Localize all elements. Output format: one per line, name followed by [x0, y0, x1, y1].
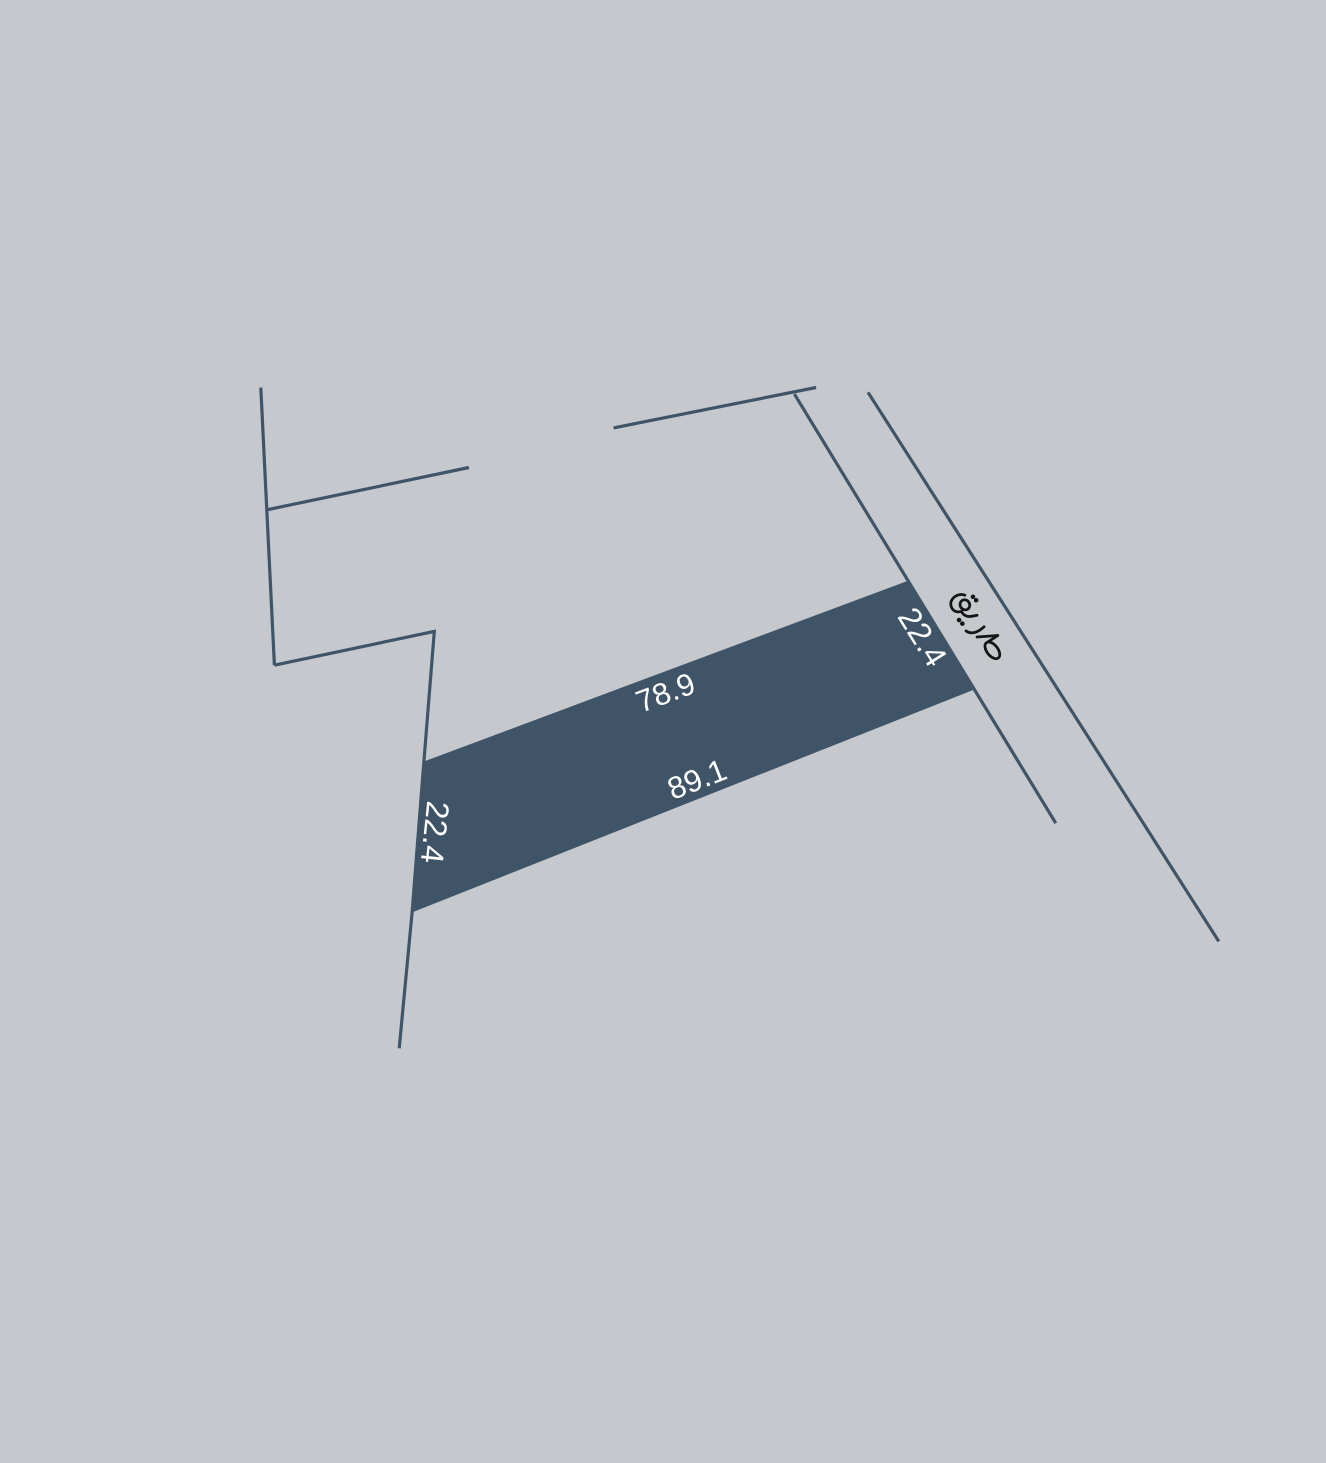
svg-text:22.4: 22.4	[414, 799, 456, 865]
